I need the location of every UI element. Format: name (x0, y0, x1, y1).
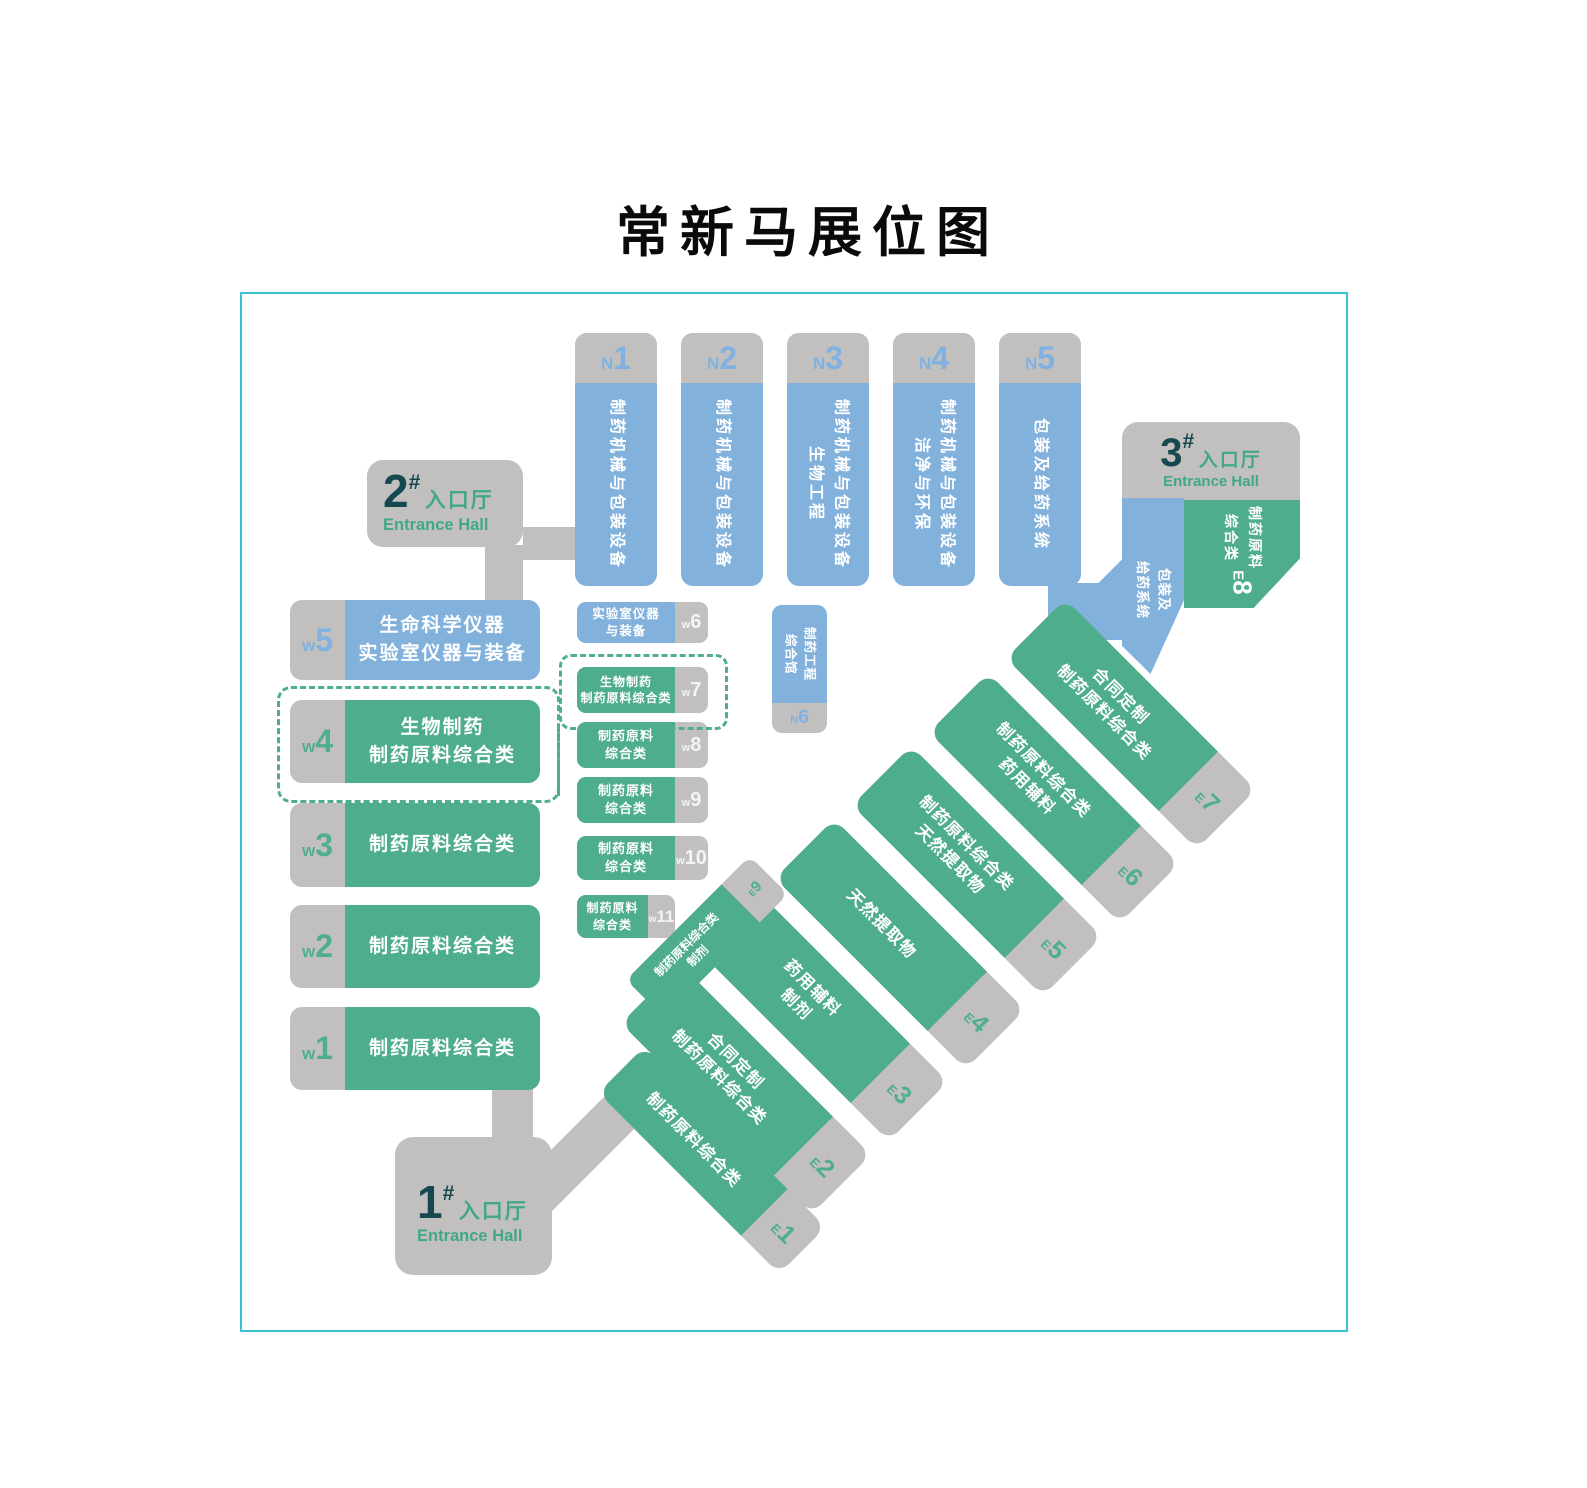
hall-w6: 实验室仪器与装备 w6 (577, 602, 708, 643)
hall-n4-category: 制药机械与包装设备洁净与环保 (893, 383, 975, 586)
hall-n5-category: 包装及给药系统 (999, 383, 1081, 586)
hall-n1-category: 制药机械与包装设备 (575, 383, 657, 586)
connector-entrance2-w5 (485, 545, 523, 603)
hall-n3: N3 制药机械与包装设备生物工程 (787, 333, 869, 586)
connector-w1-entrance1 (492, 1088, 533, 1140)
entrance-3-title: 3# 入口厅 (1122, 430, 1300, 473)
hall-w9-category: 制药原料综合类 (577, 777, 675, 823)
entrance-2-subtitle: Entrance Hall (383, 516, 523, 535)
highlight-dashed-tail (557, 726, 560, 796)
hall-n4: N4 制药机械与包装设备洁净与环保 (893, 333, 975, 586)
hall-w1: w1 制药原料综合类 (290, 1007, 540, 1090)
hall-w3: w3 制药原料综合类 (290, 803, 540, 887)
hall-w6-category: 实验室仪器与装备 (577, 602, 675, 643)
hall-n2-category: 制药机械与包装设备 (681, 383, 763, 586)
hall-w6-label: w6 (675, 602, 708, 643)
hall-e8-label: E8 (1227, 570, 1258, 594)
connector-entrance2-n1 (523, 527, 578, 560)
hall-w10-category: 制药原料综合类 (577, 836, 675, 880)
hall-n6-category: 制药工程综合馆 (772, 605, 827, 703)
highlight-dashed-box-w4 (277, 686, 560, 803)
booth-map-page: 常新马展位图 N1 制药机械与包装设备 N2 制药机械与包装设备 N3 制药机械… (0, 0, 1587, 1488)
hall-n1: N1 制药机械与包装设备 (575, 333, 657, 586)
entrance-hall-2: 2# 入口厅 Entrance Hall (367, 460, 523, 547)
hall-n3-category: 制药机械与包装设备生物工程 (787, 383, 869, 586)
hall-w9-label: w9 (675, 777, 708, 823)
entrance-hall-3: 3# 入口厅 Entrance Hall (1122, 422, 1300, 502)
hall-n5: N5 包装及给药系统 (999, 333, 1081, 586)
page-title: 常新马展位图 (240, 188, 1348, 267)
hall-n4-label: N4 (893, 333, 975, 383)
hall-n1-label: N1 (575, 333, 657, 383)
entrance-3-subtitle: Entrance Hall (1122, 473, 1300, 490)
hall-w5-label: w5 (290, 600, 345, 680)
hall-w5-category: 生命科学仪器实验室仪器与装备 (345, 600, 540, 680)
hall-w5: w5 生命科学仪器实验室仪器与装备 (290, 600, 540, 680)
hall-w9: 制药原料综合类 w9 (577, 777, 708, 823)
hall-w10-label: w10 (675, 836, 708, 880)
hall-w1-category: 制药原料综合类 (345, 1007, 540, 1090)
entrance-2-title: 2# 入口厅 (383, 468, 523, 514)
hall-w11-category: 制药原料综合类 (577, 895, 648, 938)
hall-w2: w2 制药原料综合类 (290, 905, 540, 988)
hall-n6-label: N6 (772, 703, 827, 733)
hall-w10: 制药原料综合类 w10 (577, 836, 708, 880)
hall-w11: 制药原料综合类 w11 (577, 895, 675, 938)
hall-w11-label: w11 (648, 895, 675, 938)
hall-e8-category: 制药原料综合类 (1184, 506, 1300, 570)
hall-w2-label: w2 (290, 905, 345, 988)
entrance-1-title: 1# 入口厅 (417, 1179, 552, 1225)
entrance-1-subtitle: Entrance Hall (417, 1227, 552, 1246)
hall-w2-category: 制药原料综合类 (345, 905, 540, 988)
hall-n3-label: N3 (787, 333, 869, 383)
hall-w3-category: 制药原料综合类 (345, 803, 540, 887)
entrance-hall-1: 1# 入口厅 Entrance Hall (395, 1137, 552, 1275)
hall-n5-label: N5 (999, 333, 1081, 383)
hall-w3-label: w3 (290, 803, 345, 887)
hall-n6: 制药工程综合馆 N6 (772, 605, 827, 733)
hall-n2-label: N2 (681, 333, 763, 383)
highlight-dashed-box-w7 (559, 654, 728, 730)
hall-w1-label: w1 (290, 1007, 345, 1090)
hall-n2: N2 制药机械与包装设备 (681, 333, 763, 586)
